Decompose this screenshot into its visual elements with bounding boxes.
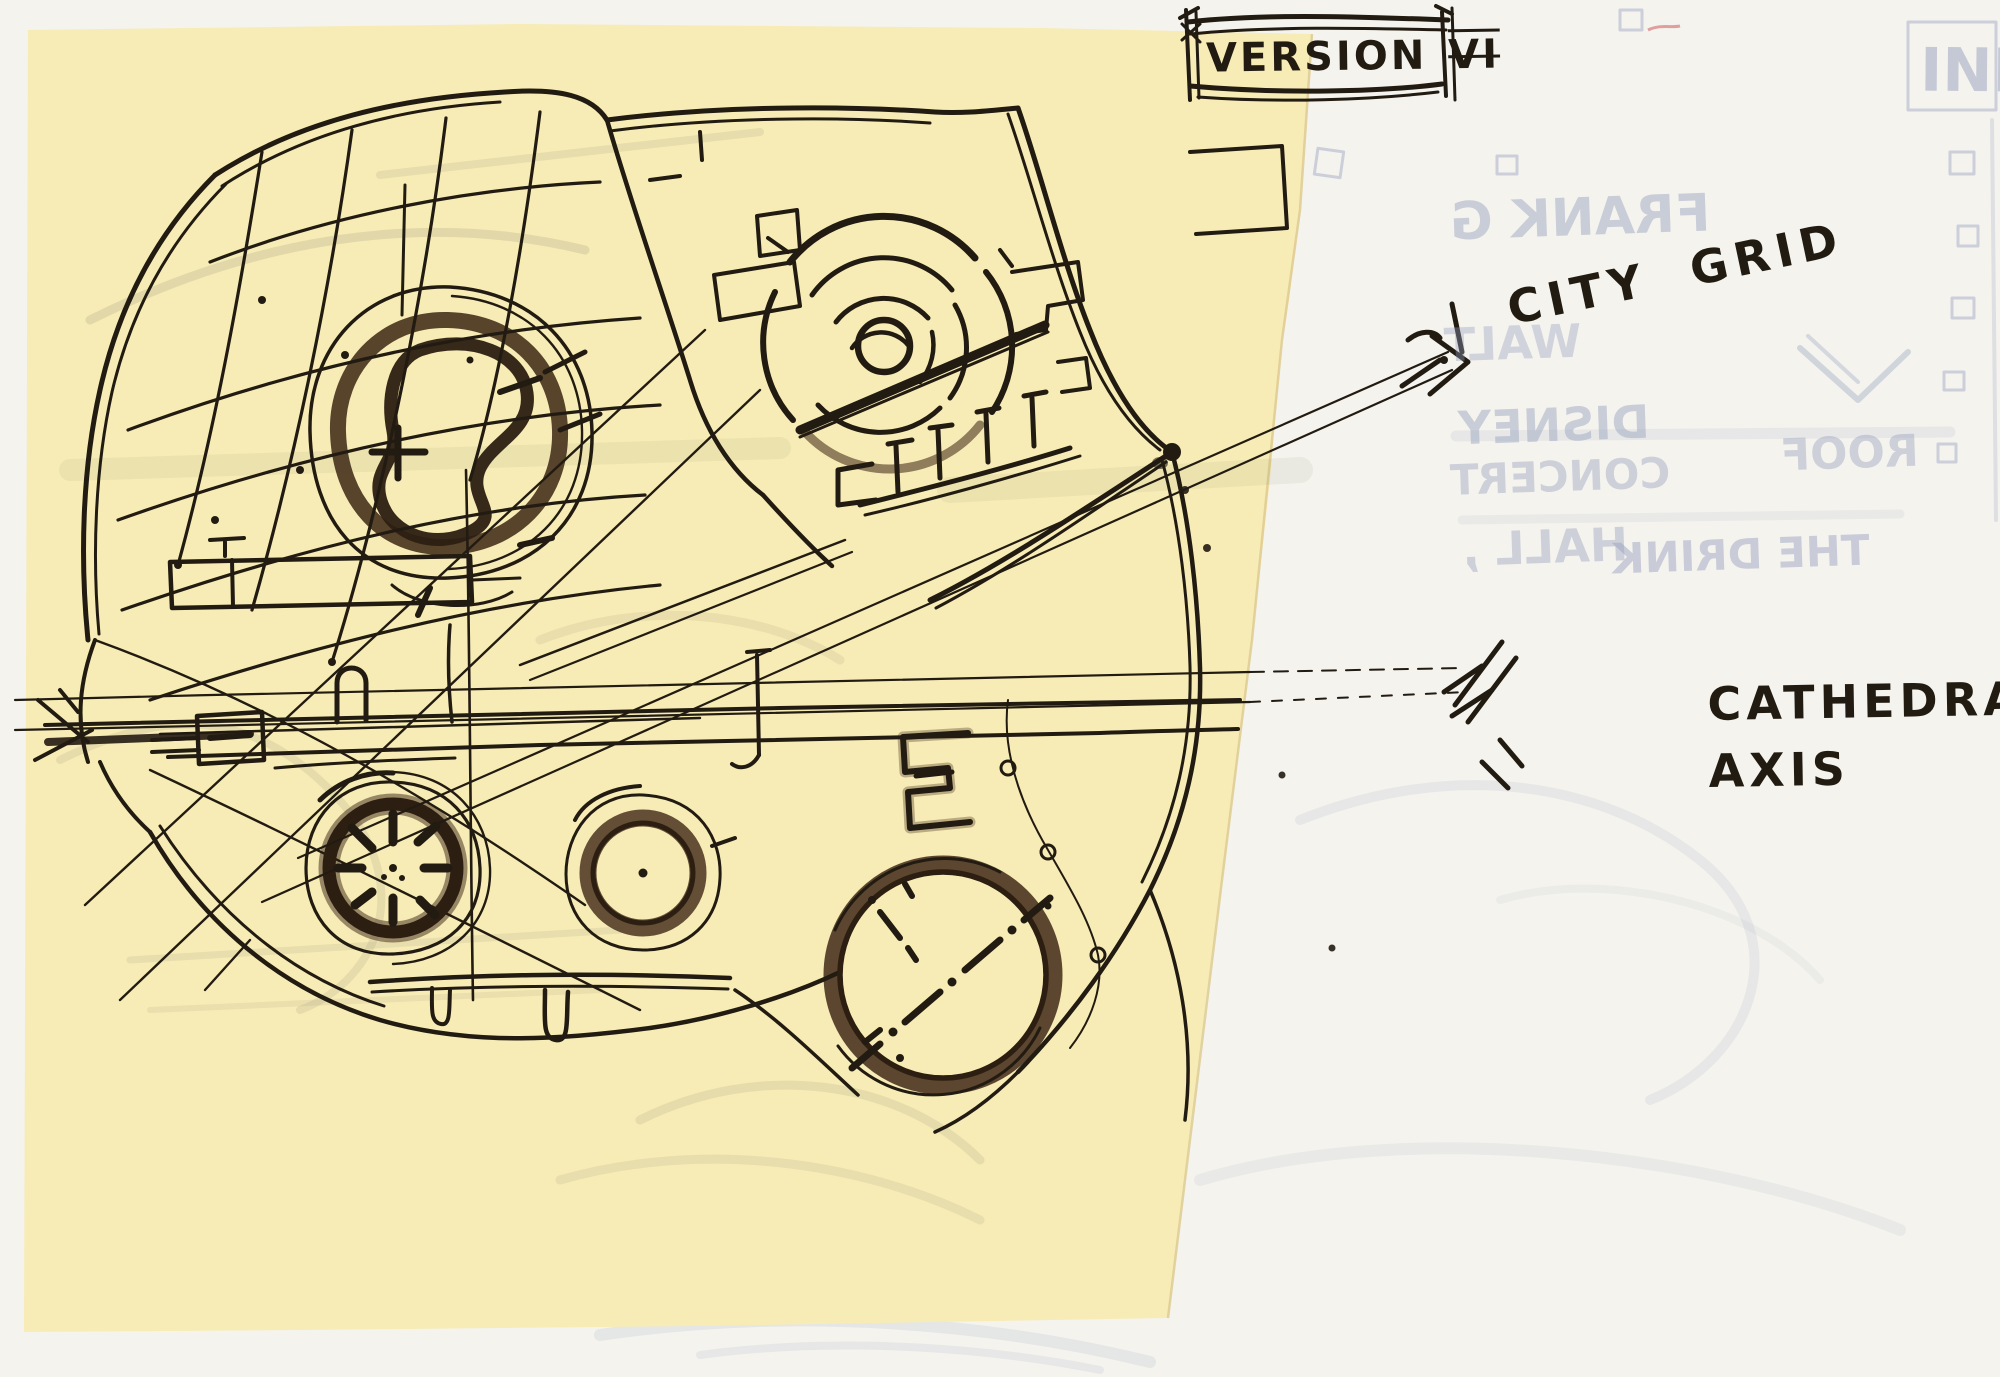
ghost-text-concert: CONCERT xyxy=(1449,448,1671,505)
ghost-text-ini: INI xyxy=(1920,36,2000,107)
cathedral-axis-line2: AXIS xyxy=(1708,732,2000,805)
ghost-text-the-drink: THE DRINK xyxy=(1611,526,1870,584)
ghost-text-frank: FRANK G xyxy=(1449,183,1711,252)
scanned-sketch-page: VERSION VI CITY GRID CATHEDRAL AXIS FRAN… xyxy=(0,0,2000,1377)
version-numeral: VI xyxy=(1444,32,1504,79)
version-word: VERSION xyxy=(1206,33,1428,82)
cathedral-axis-label: CATHEDRAL AXIS xyxy=(1707,665,2000,804)
ghost-text-walt: WALT xyxy=(1443,314,1582,373)
ghost-text-hall: HALL , xyxy=(1461,517,1629,577)
cathedral-axis-line1: CATHEDRAL xyxy=(1707,665,2000,738)
version-label: VERSION VI xyxy=(1206,32,1445,81)
ghost-text-roof: ROOF xyxy=(1779,426,1919,482)
ghost-text-disney: DISNEY xyxy=(1457,395,1650,456)
